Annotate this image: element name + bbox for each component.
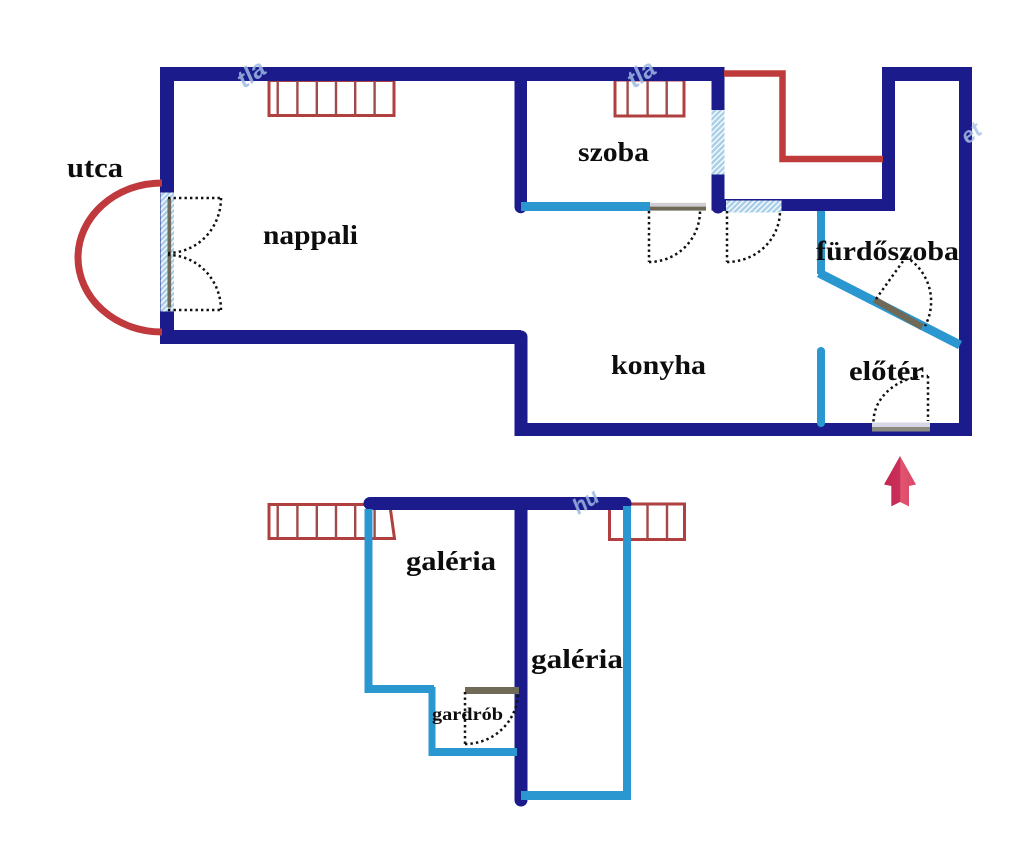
- svg-text:utca: utca: [67, 152, 124, 184]
- svg-text:konyha: konyha: [611, 350, 707, 380]
- svg-text:nappali: nappali: [263, 220, 359, 250]
- svg-text:gardrób: gardrób: [432, 704, 503, 724]
- svg-text:galéria: galéria: [531, 644, 624, 674]
- svg-text:fürdőszoba: fürdőszoba: [816, 236, 960, 266]
- svg-text:előtér: előtér: [849, 356, 924, 386]
- svg-text:galéria: galéria: [406, 546, 497, 576]
- svg-text:szoba: szoba: [578, 137, 650, 167]
